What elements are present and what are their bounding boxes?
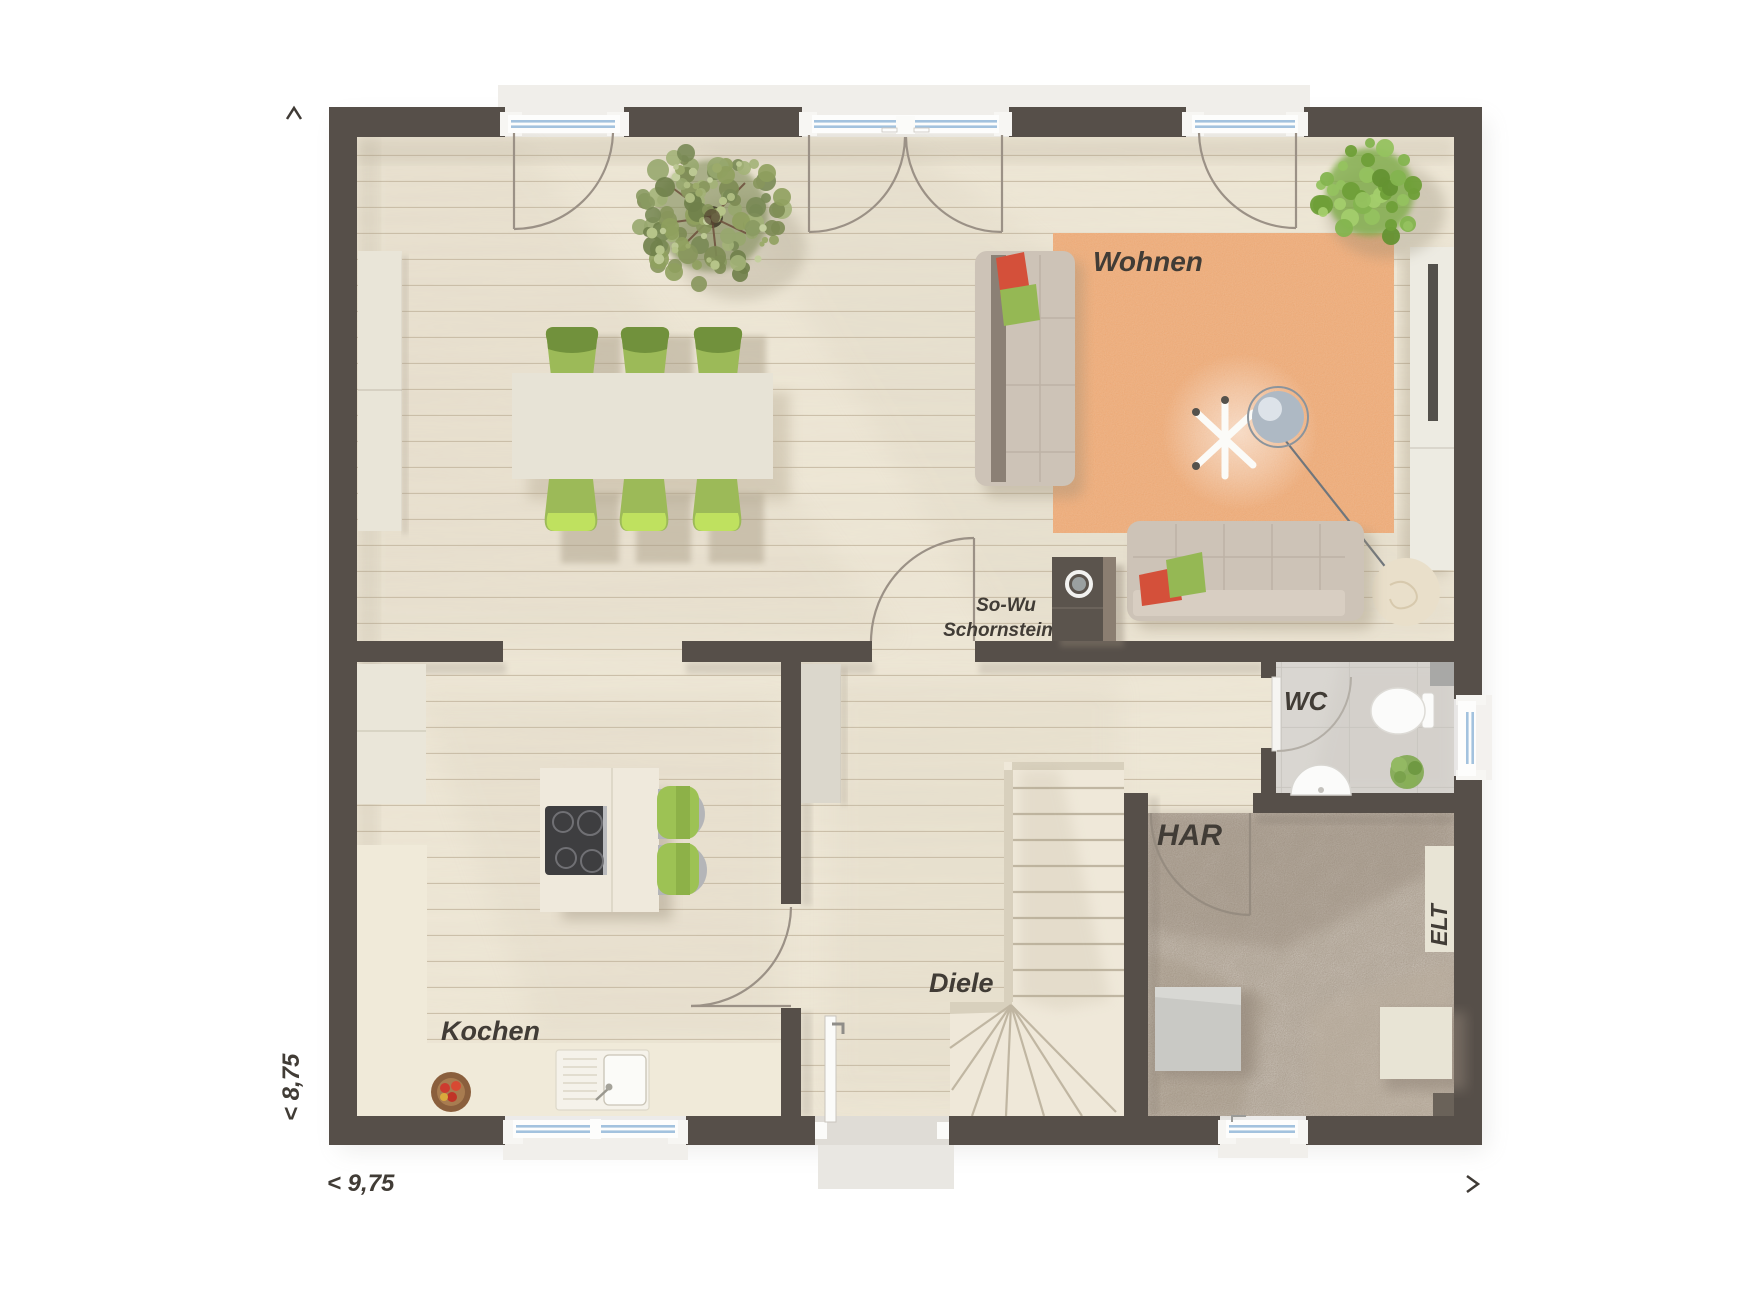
svg-text:HAR: HAR [1157, 819, 1222, 852]
svg-text:Wohnen: Wohnen [1093, 246, 1203, 277]
svg-text:< 9,75: < 9,75 [327, 1170, 395, 1197]
svg-text:So-Wu: So-Wu [976, 595, 1036, 616]
svg-text:Kochen: Kochen [441, 1016, 540, 1046]
svg-text:WC: WC [1284, 686, 1329, 716]
svg-text:Schornstein: Schornstein [943, 620, 1053, 641]
svg-text:Diele: Diele [929, 968, 994, 998]
svg-text:< 8,75: < 8,75 [278, 1053, 305, 1121]
svg-text:ELT: ELT [1426, 902, 1452, 946]
